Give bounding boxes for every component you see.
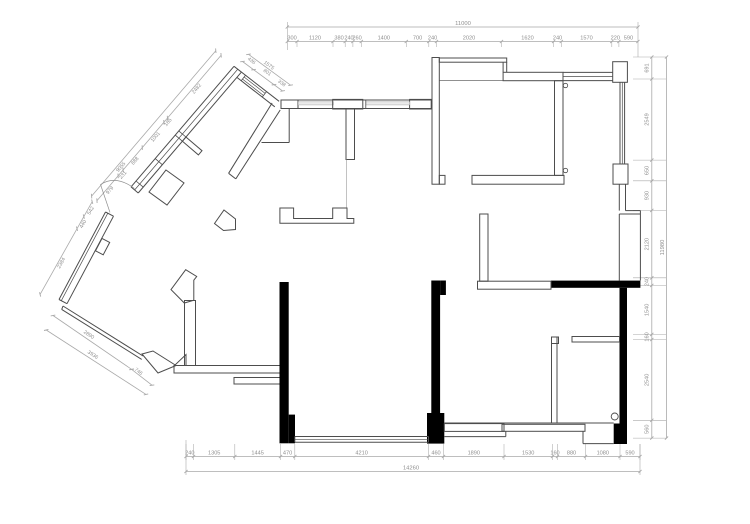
- svg-text:650: 650: [645, 166, 651, 175]
- svg-text:260: 260: [352, 36, 361, 42]
- svg-text:1080: 1080: [597, 451, 609, 457]
- svg-text:160: 160: [645, 332, 651, 341]
- svg-text:240: 240: [428, 36, 437, 42]
- svg-text:4210: 4210: [355, 451, 367, 457]
- svg-text:700: 700: [413, 36, 422, 42]
- svg-text:2120: 2120: [645, 238, 651, 250]
- svg-text:11980: 11980: [660, 240, 666, 256]
- svg-text:1890: 1890: [468, 451, 480, 457]
- svg-text:2549: 2549: [645, 113, 651, 125]
- svg-text:14260: 14260: [403, 465, 419, 471]
- svg-text:590: 590: [625, 451, 634, 457]
- svg-text:470: 470: [283, 451, 292, 457]
- svg-text:930: 930: [645, 191, 651, 200]
- svg-text:1540: 1540: [645, 304, 651, 316]
- svg-text:380: 380: [334, 36, 343, 42]
- svg-text:1120: 1120: [309, 36, 321, 42]
- svg-text:2540: 2540: [645, 374, 651, 386]
- svg-text:11000: 11000: [455, 21, 471, 27]
- svg-text:460: 460: [431, 451, 440, 457]
- svg-text:240: 240: [553, 36, 562, 42]
- svg-text:240: 240: [645, 277, 651, 286]
- svg-text:2020: 2020: [463, 36, 475, 42]
- svg-text:300: 300: [287, 36, 296, 42]
- svg-text:1305: 1305: [208, 451, 220, 457]
- svg-text:1530: 1530: [522, 451, 534, 457]
- svg-text:160: 160: [550, 451, 559, 457]
- svg-text:590: 590: [624, 36, 633, 42]
- svg-text:691: 691: [645, 63, 651, 72]
- svg-text:1620: 1620: [521, 36, 533, 42]
- svg-text:1400: 1400: [378, 36, 390, 42]
- svg-text:1445: 1445: [251, 451, 263, 457]
- svg-text:880: 880: [567, 451, 576, 457]
- svg-text:240: 240: [185, 451, 194, 457]
- svg-text:1570: 1570: [580, 36, 592, 42]
- svg-text:220: 220: [611, 36, 620, 42]
- svg-text:560: 560: [645, 425, 651, 434]
